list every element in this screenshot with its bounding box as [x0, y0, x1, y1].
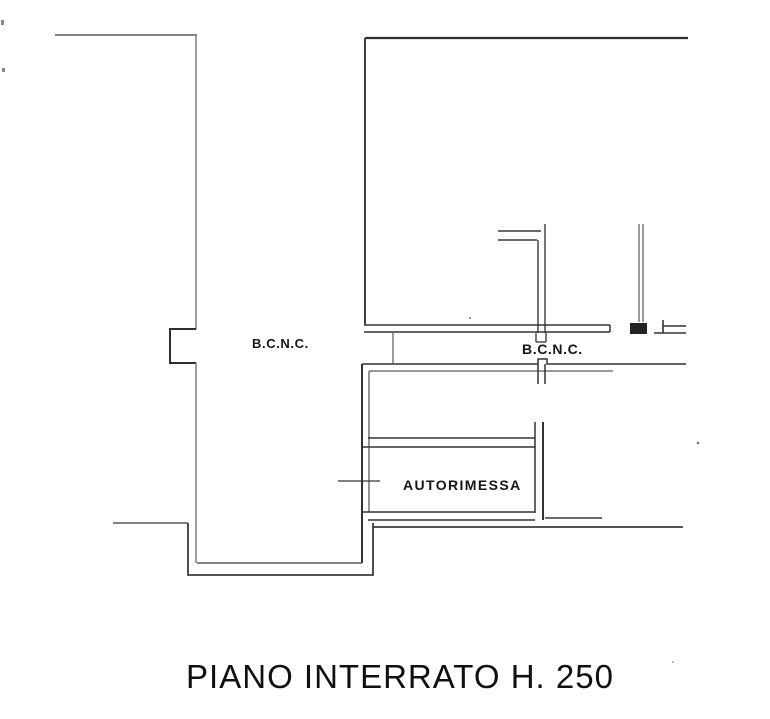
room-label-bcnc-left: B.C.N.C.	[252, 336, 309, 351]
upper-left-room-walls	[55, 35, 197, 563]
floor-plan-drawing	[0, 0, 770, 719]
room-label-bcnc-right: B.C.N.C.	[522, 341, 583, 357]
scan-specks	[1, 20, 699, 663]
corridor-upper-wall	[364, 320, 686, 342]
left-main-wall-lower	[362, 364, 369, 563]
scanned-floor-plan-page: B.C.N.C. B.C.N.C. AUTORIMESSA PIANO INTE…	[0, 0, 770, 719]
door-jamb-block	[630, 323, 647, 334]
lower-boundary-walls	[113, 518, 683, 575]
interior-partition-walls	[498, 224, 643, 333]
plan-title: PIANO INTERRATO H. 250	[0, 658, 770, 696]
room-label-autorimessa: AUTORIMESSA	[403, 477, 522, 493]
